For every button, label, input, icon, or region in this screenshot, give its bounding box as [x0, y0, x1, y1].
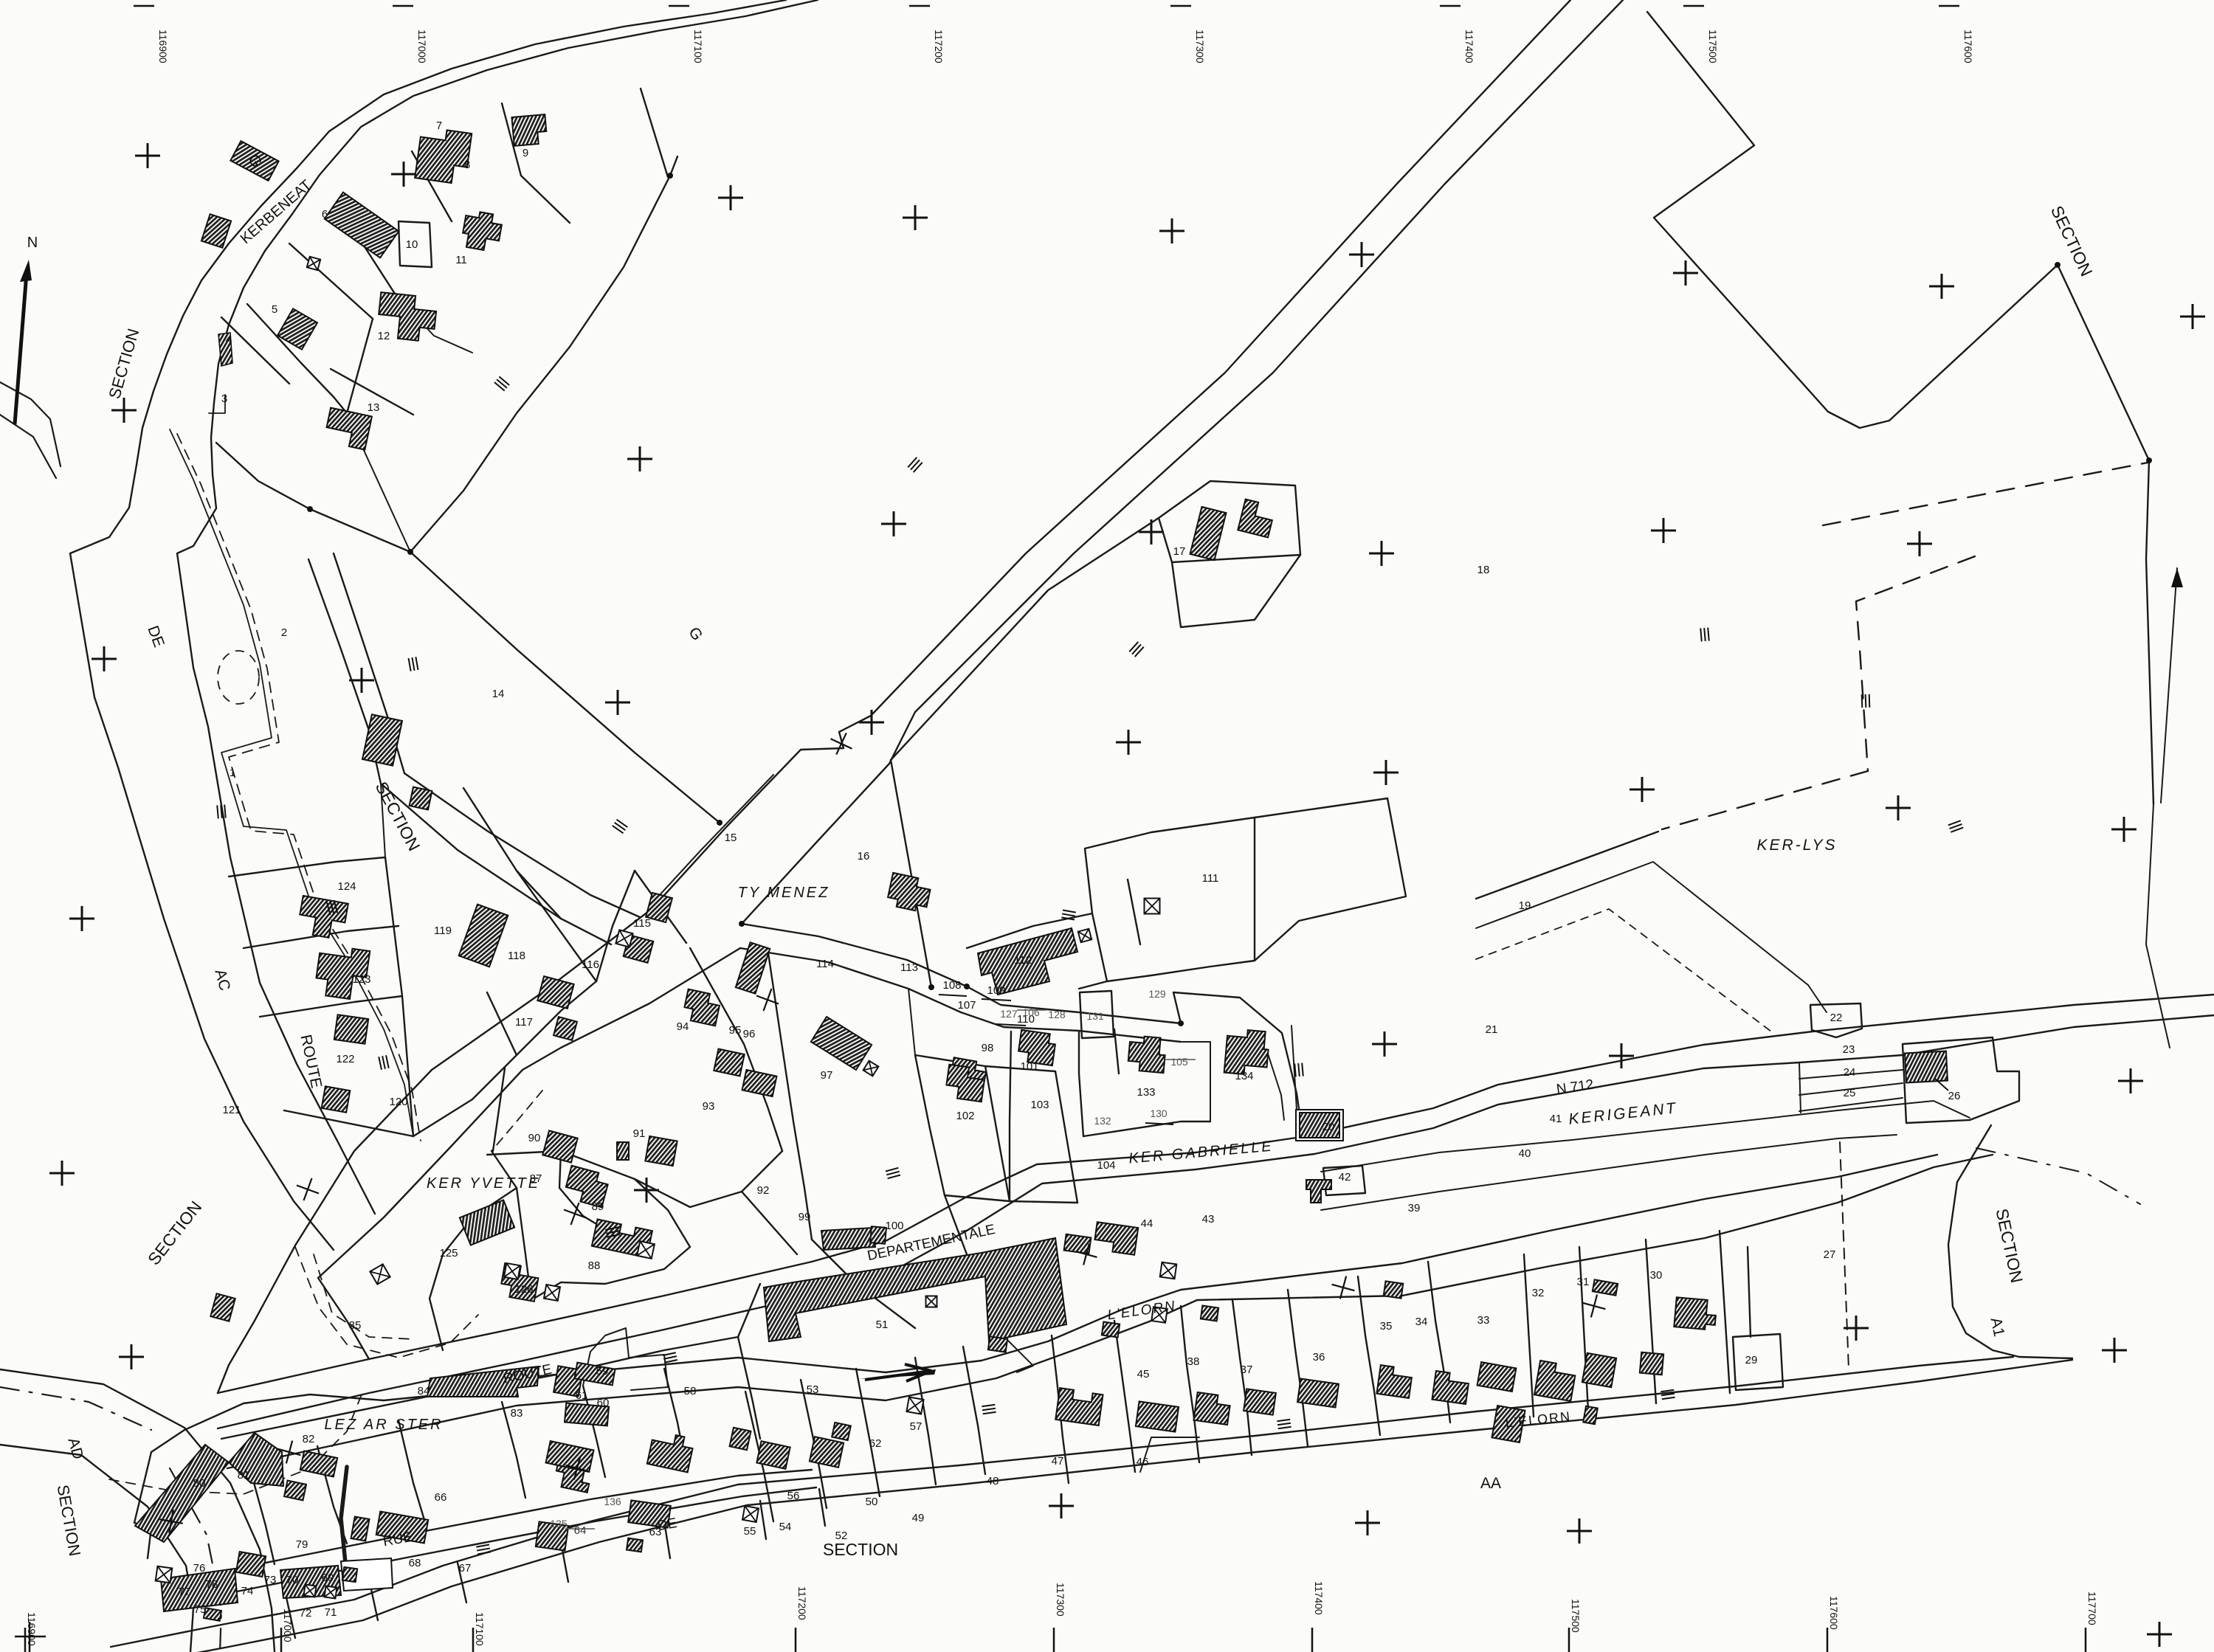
svg-text:109: 109: [987, 984, 1005, 997]
svg-text:125: 125: [439, 1247, 458, 1259]
svg-text:33: 33: [1477, 1314, 1490, 1327]
svg-text:KER-LYS: KER-LYS: [1757, 837, 1838, 854]
svg-text:26: 26: [1948, 1090, 1961, 1102]
svg-text:20: 20: [1322, 1121, 1335, 1133]
svg-text:44: 44: [1141, 1217, 1153, 1230]
svg-text:64: 64: [574, 1524, 587, 1537]
svg-text:49: 49: [912, 1512, 925, 1524]
svg-text:35: 35: [1380, 1320, 1393, 1333]
svg-text:19: 19: [1519, 899, 1531, 912]
svg-text:117000: 117000: [416, 30, 428, 63]
svg-text:75: 75: [194, 1603, 207, 1616]
svg-text:76: 76: [193, 1562, 206, 1575]
svg-text:16: 16: [858, 850, 870, 863]
svg-text:5: 5: [272, 303, 277, 316]
svg-text:63: 63: [649, 1526, 662, 1538]
svg-text:36: 36: [1313, 1351, 1325, 1364]
svg-text:24: 24: [1844, 1066, 1856, 1079]
svg-text:9: 9: [523, 147, 528, 159]
svg-text:90: 90: [528, 1132, 541, 1144]
svg-text:83: 83: [511, 1407, 523, 1420]
svg-text:51: 51: [876, 1319, 889, 1331]
svg-text:117100: 117100: [474, 1612, 486, 1646]
svg-text:34: 34: [1415, 1316, 1428, 1328]
svg-text:72: 72: [300, 1607, 312, 1620]
svg-text:112: 112: [1014, 954, 1032, 967]
svg-text:135: 135: [550, 1518, 568, 1530]
svg-text:46: 46: [1137, 1456, 1149, 1468]
svg-text:74: 74: [241, 1585, 254, 1597]
svg-text:118: 118: [508, 950, 525, 962]
svg-text:82: 82: [303, 1433, 315, 1445]
svg-text:48: 48: [987, 1475, 999, 1487]
svg-text:15: 15: [725, 832, 737, 844]
svg-text:55: 55: [744, 1525, 756, 1538]
svg-text:21: 21: [1486, 1023, 1498, 1036]
svg-text:60: 60: [597, 1397, 610, 1409]
svg-text:43: 43: [1202, 1213, 1215, 1226]
svg-text:7: 7: [436, 120, 442, 132]
svg-text:30: 30: [1650, 1269, 1663, 1282]
svg-text:130: 130: [1150, 1107, 1168, 1119]
svg-text:134: 134: [1235, 1070, 1253, 1082]
svg-text:KER YVETTE: KER YVETTE: [427, 1175, 540, 1192]
svg-text:6: 6: [322, 208, 328, 221]
svg-text:126: 126: [514, 1283, 533, 1296]
svg-text:52: 52: [835, 1530, 848, 1542]
svg-text:102: 102: [956, 1110, 974, 1122]
svg-text:37: 37: [1241, 1364, 1253, 1376]
svg-text:98: 98: [982, 1042, 994, 1054]
svg-text:100: 100: [885, 1220, 903, 1232]
svg-text:128: 128: [1048, 1009, 1066, 1020]
svg-text:56: 56: [787, 1490, 800, 1502]
svg-text:67: 67: [459, 1562, 472, 1575]
svg-text:2: 2: [281, 626, 287, 639]
svg-text:131: 131: [1086, 1010, 1104, 1022]
svg-text:47: 47: [1052, 1455, 1064, 1468]
svg-text:111: 111: [1202, 872, 1219, 885]
svg-text:AA: AA: [1480, 1475, 1501, 1492]
svg-text:96: 96: [743, 1028, 756, 1040]
svg-text:121: 121: [222, 1104, 241, 1116]
svg-text:105: 105: [1170, 1056, 1188, 1068]
svg-text:114: 114: [816, 958, 834, 970]
svg-text:27: 27: [1824, 1248, 1836, 1261]
svg-text:119: 119: [434, 925, 452, 937]
svg-text:107: 107: [957, 999, 976, 1012]
svg-text:62: 62: [869, 1437, 882, 1450]
svg-text:95: 95: [729, 1024, 742, 1037]
svg-text:14: 14: [492, 688, 505, 700]
svg-text:17: 17: [1173, 545, 1186, 558]
svg-text:77: 77: [179, 1586, 191, 1598]
svg-text:59: 59: [596, 1365, 609, 1378]
svg-text:89: 89: [592, 1200, 604, 1213]
svg-text:84: 84: [418, 1385, 430, 1397]
svg-text:23: 23: [1843, 1043, 1855, 1056]
svg-text:70: 70: [286, 1574, 299, 1586]
svg-text:136: 136: [604, 1496, 621, 1507]
svg-text:117400: 117400: [1313, 1581, 1325, 1615]
svg-text:99: 99: [799, 1211, 811, 1223]
svg-text:78: 78: [206, 1578, 218, 1591]
svg-text:132: 132: [1094, 1115, 1111, 1127]
svg-text:22: 22: [1830, 1012, 1843, 1024]
svg-text:81: 81: [238, 1469, 250, 1482]
svg-text:3: 3: [221, 393, 227, 405]
svg-text:87: 87: [530, 1172, 542, 1185]
svg-text:123: 123: [352, 973, 370, 986]
svg-text:104: 104: [1097, 1159, 1115, 1172]
svg-text:1: 1: [230, 767, 235, 779]
svg-text:N: N: [27, 235, 38, 251]
svg-text:25: 25: [1844, 1087, 1856, 1099]
svg-text:50: 50: [866, 1496, 878, 1508]
svg-text:117000: 117000: [282, 1608, 294, 1642]
svg-text:LEZ AR STER: LEZ AR STER: [324, 1417, 443, 1433]
svg-text:38: 38: [1187, 1355, 1200, 1368]
svg-text:79: 79: [296, 1538, 308, 1551]
svg-text:117700: 117700: [2086, 1591, 2098, 1625]
svg-text:TY MENEZ: TY MENEZ: [738, 885, 830, 901]
svg-text:61: 61: [576, 1389, 588, 1402]
svg-text:115: 115: [633, 917, 651, 930]
svg-text:42: 42: [1339, 1171, 1351, 1183]
svg-text:117500: 117500: [1570, 1599, 1582, 1633]
svg-text:66: 66: [435, 1491, 447, 1504]
svg-text:97: 97: [821, 1069, 833, 1082]
svg-text:117: 117: [515, 1016, 533, 1029]
svg-text:45: 45: [1137, 1368, 1150, 1380]
svg-text:117600: 117600: [1962, 30, 1974, 63]
svg-text:117400: 117400: [1463, 30, 1475, 63]
svg-text:133: 133: [1137, 1086, 1155, 1099]
svg-text:117300: 117300: [1194, 30, 1206, 63]
svg-text:71: 71: [325, 1606, 337, 1619]
svg-text:57: 57: [910, 1420, 922, 1433]
svg-text:108: 108: [942, 979, 961, 992]
svg-text:13: 13: [368, 401, 380, 414]
svg-text:103: 103: [1030, 1099, 1049, 1111]
svg-text:129: 129: [1148, 988, 1166, 1000]
svg-text:116900: 116900: [26, 1612, 38, 1646]
svg-text:68: 68: [409, 1557, 421, 1569]
svg-text:54: 54: [779, 1521, 792, 1533]
svg-text:116: 116: [582, 958, 599, 971]
svg-text:32: 32: [1532, 1287, 1545, 1299]
svg-text:124: 124: [337, 880, 356, 893]
svg-text:4: 4: [226, 333, 232, 346]
svg-text:58: 58: [684, 1385, 697, 1397]
svg-text:85: 85: [349, 1319, 362, 1332]
svg-text:53: 53: [807, 1383, 819, 1396]
svg-text:80: 80: [193, 1477, 206, 1490]
svg-text:91: 91: [633, 1127, 646, 1140]
svg-text:117200: 117200: [796, 1586, 808, 1620]
svg-text:10: 10: [406, 238, 418, 251]
svg-text:93: 93: [703, 1100, 715, 1113]
svg-text:127: 127: [1000, 1008, 1018, 1020]
svg-text:29: 29: [1745, 1354, 1758, 1366]
svg-text:69: 69: [322, 1572, 334, 1584]
svg-text:40: 40: [1519, 1147, 1531, 1160]
svg-text:18: 18: [1477, 564, 1490, 576]
svg-text:88: 88: [588, 1259, 601, 1272]
svg-text:12: 12: [378, 330, 390, 342]
svg-text:101: 101: [1020, 1060, 1038, 1073]
svg-text:31: 31: [1577, 1276, 1590, 1288]
svg-text:8: 8: [464, 159, 470, 171]
svg-text:117300: 117300: [1055, 1583, 1066, 1617]
svg-text:116900: 116900: [157, 30, 169, 63]
svg-text:SECTION: SECTION: [823, 1540, 898, 1559]
svg-text:73: 73: [264, 1574, 277, 1586]
svg-text:41: 41: [1550, 1113, 1562, 1125]
svg-text:11: 11: [455, 254, 467, 266]
svg-text:39: 39: [1408, 1202, 1421, 1214]
svg-text:122: 122: [336, 1053, 354, 1065]
svg-text:106: 106: [1022, 1006, 1040, 1018]
svg-text:92: 92: [757, 1184, 770, 1197]
svg-text:117600: 117600: [1828, 1596, 1840, 1630]
svg-text:113: 113: [900, 961, 918, 974]
svg-text:117500: 117500: [1707, 30, 1719, 63]
svg-text:117100: 117100: [692, 30, 704, 63]
svg-text:117200: 117200: [933, 30, 945, 63]
svg-text:120: 120: [389, 1096, 407, 1108]
svg-text:94: 94: [677, 1020, 689, 1033]
